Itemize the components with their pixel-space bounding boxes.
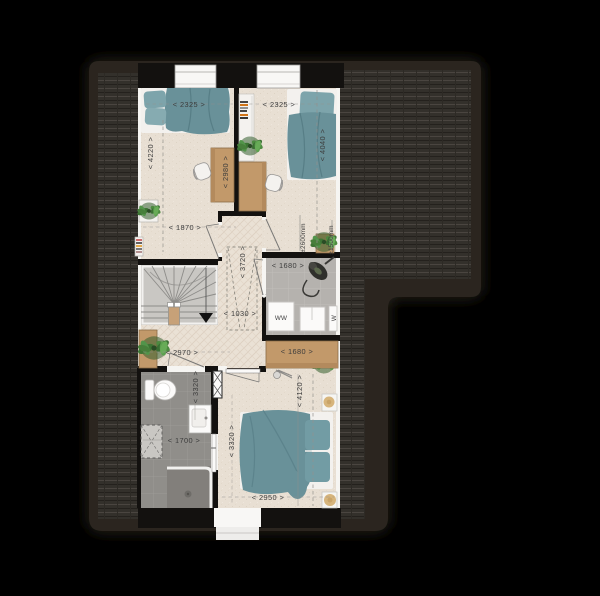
svg-text:< 3320 >: < 3320 > bbox=[227, 425, 236, 457]
svg-text:±1500mm: ±1500mm bbox=[328, 225, 335, 254]
svg-text:< 3720 >: < 3720 > bbox=[238, 246, 247, 278]
svg-text:< 2325 >: < 2325 > bbox=[173, 100, 205, 109]
svg-text:< 4220 >: < 4220 > bbox=[146, 137, 155, 169]
svg-text:< 1870 >: < 1870 > bbox=[169, 223, 201, 232]
svg-text:W: W bbox=[331, 315, 338, 321]
svg-text:±2600mm: ±2600mm bbox=[300, 223, 307, 252]
svg-text:< 4040 >: < 4040 > bbox=[318, 129, 327, 161]
svg-text:< 2950 >: < 2950 > bbox=[252, 493, 284, 502]
svg-text:WW: WW bbox=[275, 315, 287, 322]
svg-text:< 1700 >: < 1700 > bbox=[168, 436, 200, 445]
svg-text:< 1680 >: < 1680 > bbox=[272, 261, 304, 270]
svg-text:< 4120 >: < 4120 > bbox=[295, 375, 304, 407]
svg-text:< 1680 >: < 1680 > bbox=[281, 347, 313, 356]
svg-text:< 2980 >: < 2980 > bbox=[221, 156, 230, 188]
svg-text:< 1030 >: < 1030 > bbox=[224, 309, 256, 318]
svg-text:< 3320 >: < 3320 > bbox=[191, 371, 200, 403]
svg-text:< 2325 >: < 2325 > bbox=[263, 100, 295, 109]
svg-text:< 2970 >: < 2970 > bbox=[166, 348, 198, 357]
